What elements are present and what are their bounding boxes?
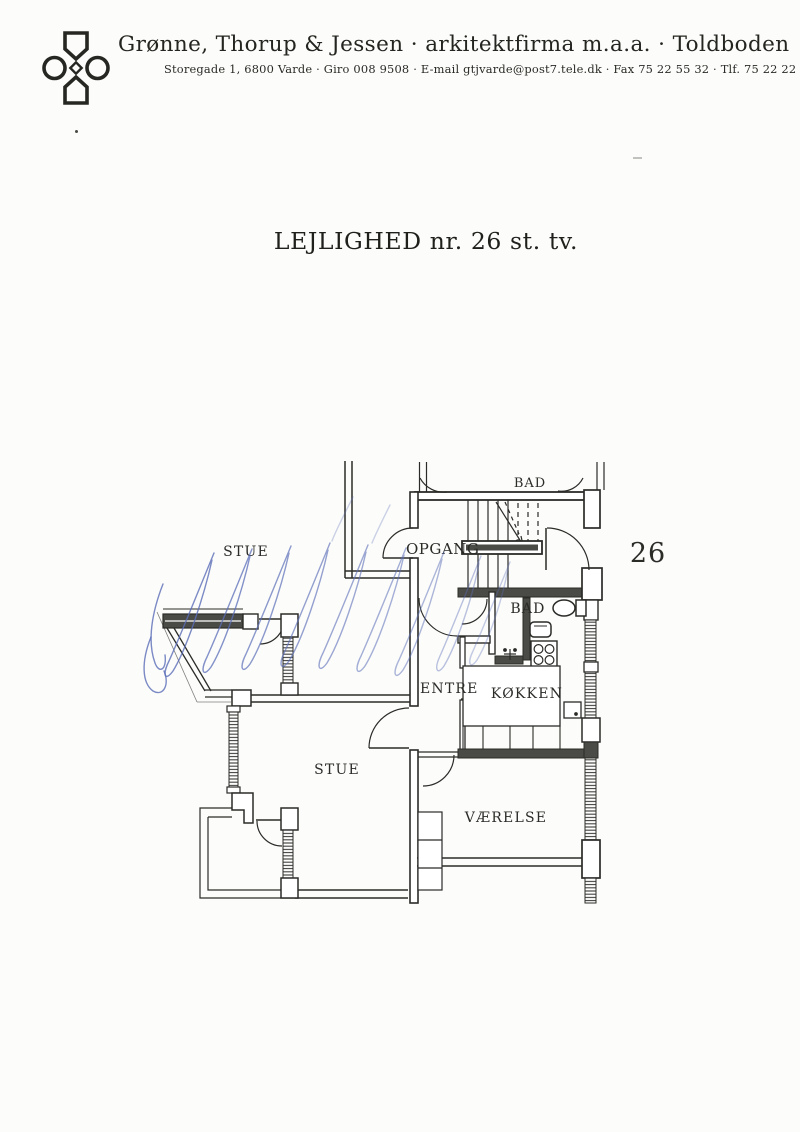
label-hall: ENTRE xyxy=(420,681,479,697)
closet xyxy=(418,812,442,890)
label-living-room: STUE xyxy=(314,762,360,778)
label-kitchen: KØKKEN xyxy=(491,686,563,702)
scan-dash xyxy=(633,157,642,159)
label-neighbor-living-room: STUE xyxy=(223,544,269,560)
page-title: LEJLIGHED nr. 26 st. tv. xyxy=(26,227,800,255)
label-bath: BAD xyxy=(510,601,545,617)
floor-plan-drawing: BAD STUE OPGANG BAD ENTRE KØKKEN STUE VÆ… xyxy=(0,440,800,920)
bay-window-upper xyxy=(157,609,298,702)
company-logo-icon xyxy=(42,30,112,106)
address-line: Storegade 1, 6800 Varde · Giro 008 9508 … xyxy=(118,62,778,76)
stove-icon xyxy=(531,641,557,668)
scan-speck xyxy=(75,130,78,133)
label-bath-upper: BAD xyxy=(514,476,546,491)
company-name: Grønne, Thorup & Jessen · arkitektfirma … xyxy=(118,32,778,57)
label-room: VÆRELSE xyxy=(464,810,547,826)
washbasin-icon xyxy=(530,622,551,637)
apartment-number: 26 xyxy=(630,538,666,569)
toilet-icon xyxy=(553,600,586,616)
pen-scribbles xyxy=(144,497,510,693)
